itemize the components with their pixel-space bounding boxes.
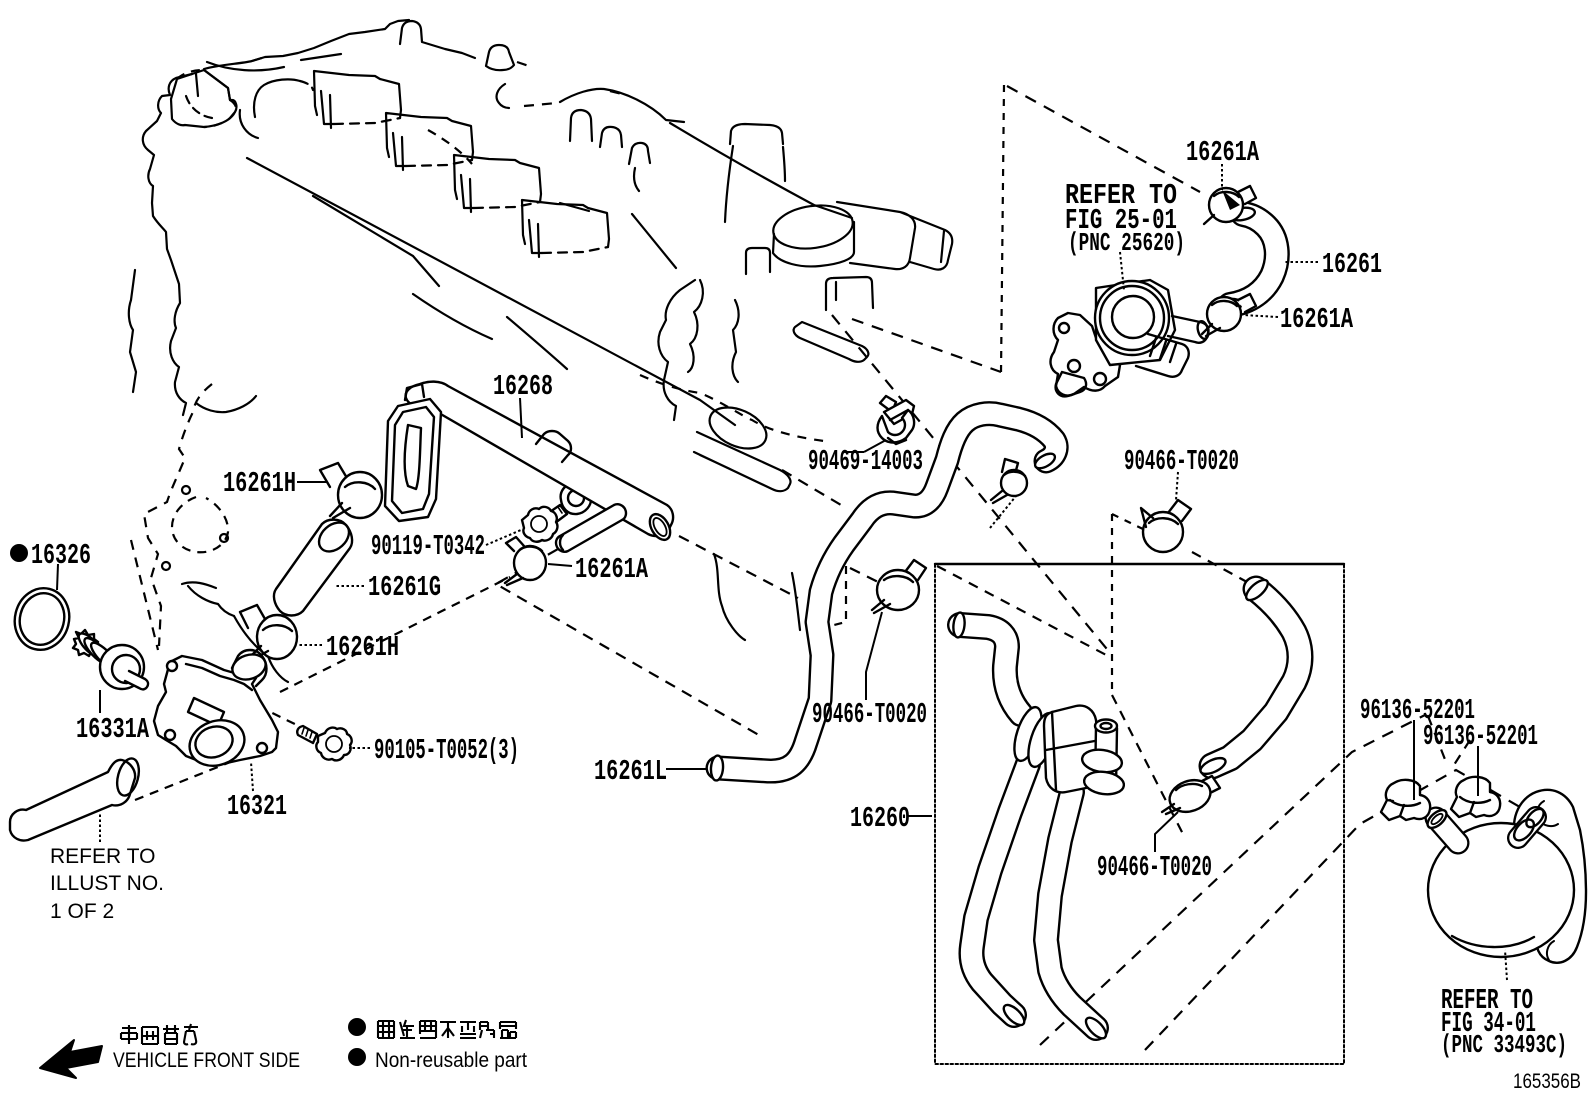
svg-text:16268: 16268 — [493, 370, 553, 403]
svg-text:16261H: 16261H — [223, 467, 296, 500]
svg-text:VEHICLE FRONT SIDE: VEHICLE FRONT SIDE — [113, 1049, 300, 1072]
svg-text:96136-52201: 96136-52201 — [1423, 720, 1538, 753]
svg-text:16261: 16261 — [1322, 248, 1382, 281]
svg-text:16260: 16260 — [850, 802, 910, 835]
svg-text:16261G: 16261G — [368, 571, 441, 604]
svg-text:(PNC 25620): (PNC 25620) — [1068, 228, 1185, 258]
svg-text:90466-T0020: 90466-T0020 — [812, 698, 927, 731]
svg-text:16321: 16321 — [227, 790, 287, 823]
svg-text:REFER TO: REFER TO — [50, 845, 155, 868]
svg-text:16261L: 16261L — [594, 755, 667, 788]
svg-text:90466-T0020: 90466-T0020 — [1124, 445, 1239, 478]
svg-text:90469-14003: 90469-14003 — [808, 445, 923, 478]
svg-text:ILLUST NO.: ILLUST NO. — [50, 872, 164, 895]
svg-text:90105-T0052(3): 90105-T0052(3) — [374, 734, 519, 767]
svg-text:16261A: 16261A — [1280, 303, 1353, 336]
svg-text:90119-T0342: 90119-T0342 — [371, 530, 485, 563]
svg-text:16261H: 16261H — [326, 631, 399, 664]
svg-text:90466-T0020: 90466-T0020 — [1097, 851, 1212, 884]
svg-text:Non-reusable part: Non-reusable part — [375, 1049, 527, 1072]
svg-text:16261A: 16261A — [1186, 136, 1259, 169]
svg-text:16261A: 16261A — [575, 553, 648, 586]
svg-text:1 OF 2: 1 OF 2 — [50, 900, 114, 923]
svg-text:165356B: 165356B — [1513, 1070, 1581, 1093]
svg-text:16331A: 16331A — [76, 713, 149, 746]
svg-text:(PNC 33493C): (PNC 33493C) — [1441, 1030, 1567, 1060]
svg-text:16326: 16326 — [31, 539, 91, 572]
